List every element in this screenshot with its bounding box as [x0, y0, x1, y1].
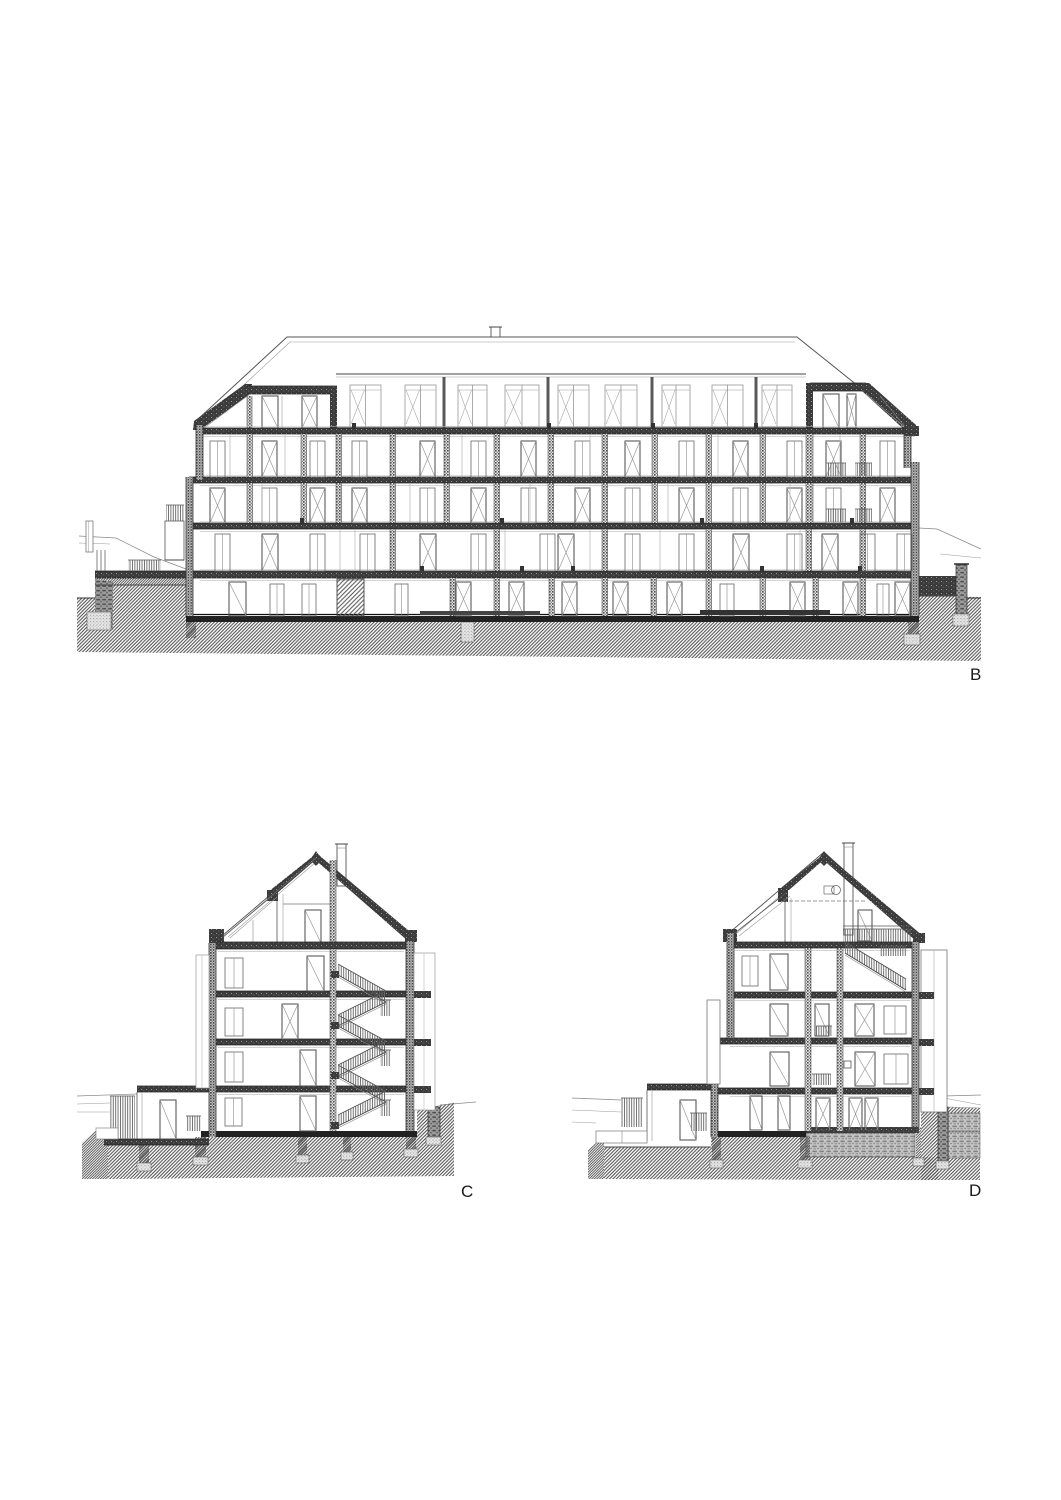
- svg-text:B: B: [970, 665, 981, 684]
- svg-text:C: C: [461, 1182, 473, 1201]
- svg-text:D: D: [969, 1181, 981, 1200]
